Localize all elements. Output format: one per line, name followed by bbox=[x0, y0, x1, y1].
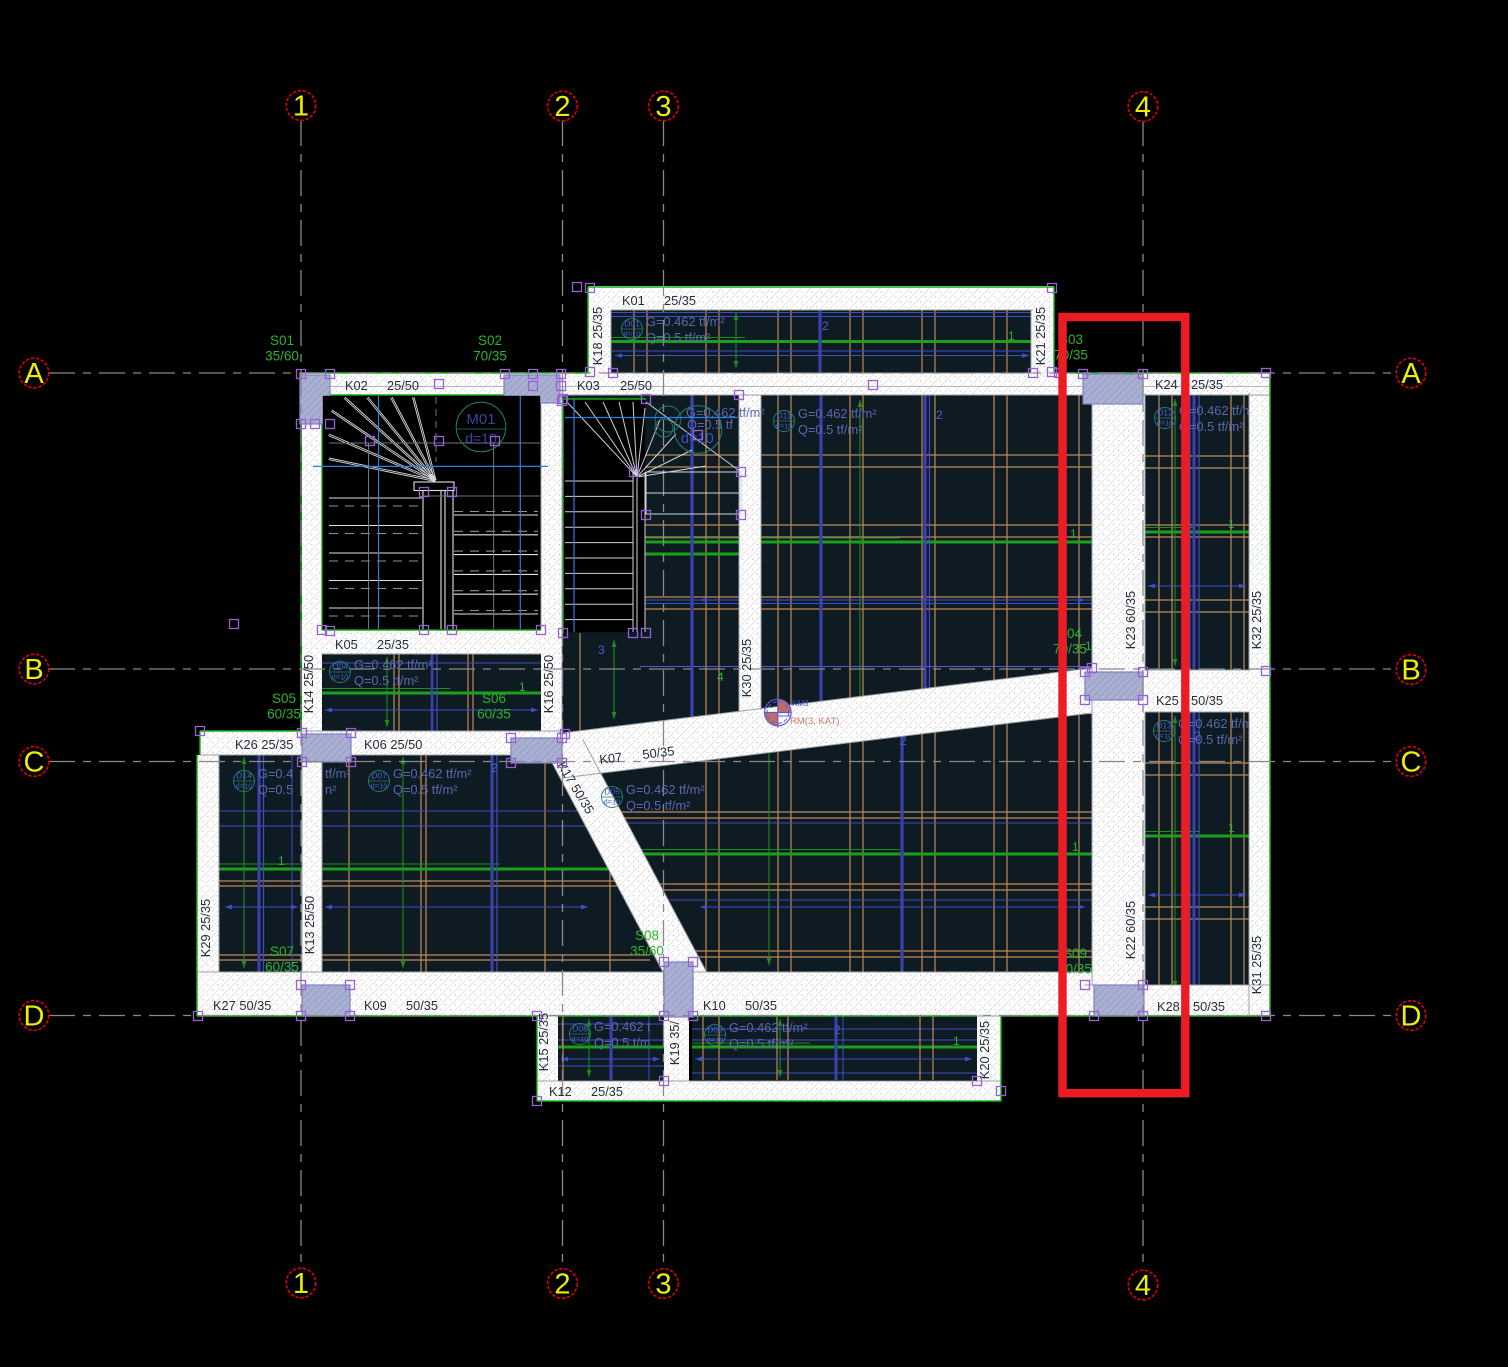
svg-text:35/60: 35/60 bbox=[630, 944, 664, 959]
svg-text:25/50: 25/50 bbox=[620, 378, 652, 393]
svg-text:D08: D08 bbox=[572, 1024, 588, 1034]
svg-text:2: 2 bbox=[822, 319, 829, 333]
svg-text:50/35: 50/35 bbox=[745, 998, 777, 1013]
svg-text:2: 2 bbox=[491, 761, 498, 775]
svg-text:KM3: KM3 bbox=[792, 699, 809, 708]
svg-text:M01: M01 bbox=[466, 411, 495, 428]
svg-text:d=10: d=10 bbox=[465, 430, 497, 446]
svg-text:K12: K12 bbox=[549, 1084, 572, 1099]
svg-text:60/35: 60/35 bbox=[267, 707, 301, 722]
svg-text:K10: K10 bbox=[703, 998, 726, 1013]
svg-text:K26 25/35: K26 25/35 bbox=[235, 737, 293, 752]
svg-text:4: 4 bbox=[1135, 1270, 1151, 1302]
svg-text:n²: n² bbox=[325, 782, 337, 797]
svg-text:35/60: 35/60 bbox=[265, 349, 299, 364]
svg-text:1: 1 bbox=[1008, 329, 1015, 343]
svg-text:C: C bbox=[24, 746, 45, 778]
svg-text:70/35: 70/35 bbox=[1053, 642, 1087, 657]
svg-text:K19 35/: K19 35/ bbox=[667, 1021, 682, 1066]
svg-text:K14 25/50: K14 25/50 bbox=[301, 655, 316, 713]
svg-text:B: B bbox=[24, 654, 43, 686]
svg-text:1: 1 bbox=[1072, 840, 1079, 854]
svg-text:25/35: 25/35 bbox=[664, 293, 696, 308]
svg-text:1: 1 bbox=[1228, 821, 1235, 835]
svg-text:3: 3 bbox=[655, 91, 671, 123]
svg-text:d=10: d=10 bbox=[624, 330, 641, 339]
svg-text:50/35: 50/35 bbox=[406, 998, 438, 1013]
svg-text:K29 25/35: K29 25/35 bbox=[198, 899, 213, 957]
svg-text:G=0.462 tf/m²: G=0.462 tf/m² bbox=[393, 766, 472, 781]
svg-text:d=10: d=10 bbox=[1157, 419, 1174, 428]
svg-text:S05: S05 bbox=[272, 691, 296, 706]
svg-text:60/35: 60/35 bbox=[265, 960, 299, 975]
svg-text:S01: S01 bbox=[270, 333, 294, 348]
svg-text:G=0.462 tf/m²: G=0.462 tf/m² bbox=[729, 1020, 808, 1035]
svg-text:K02: K02 bbox=[345, 378, 368, 393]
svg-text:D14: D14 bbox=[236, 771, 252, 781]
svg-text:Q=0.5: Q=0.5 bbox=[258, 782, 293, 797]
svg-text:Q=0.5 tf/m²: Q=0.5 tf/m² bbox=[798, 422, 863, 437]
svg-text:2: 2 bbox=[834, 1023, 841, 1037]
svg-text:d=10: d=10 bbox=[572, 1035, 589, 1044]
svg-text:50/35: 50/35 bbox=[1191, 693, 1223, 708]
svg-text:K30 25/35: K30 25/35 bbox=[739, 639, 754, 697]
svg-text:K15 25/35: K15 25/35 bbox=[536, 1013, 551, 1071]
svg-text:K25: K25 bbox=[1156, 693, 1179, 708]
svg-text:d=10: d=10 bbox=[332, 673, 349, 682]
svg-text:D05: D05 bbox=[604, 787, 620, 797]
svg-text:d=10: d=10 bbox=[604, 798, 621, 807]
svg-text:1: 1 bbox=[293, 1268, 309, 1300]
svg-text:70/35: 70/35 bbox=[473, 349, 507, 364]
svg-text:25/35: 25/35 bbox=[591, 1084, 623, 1099]
svg-text:G=0.462 t: G=0.462 t bbox=[594, 1019, 651, 1034]
svg-text:D09: D09 bbox=[707, 1025, 723, 1035]
svg-text:2: 2 bbox=[554, 1268, 570, 1300]
svg-text:D12: D12 bbox=[1157, 408, 1173, 418]
svg-text:S02: S02 bbox=[478, 333, 502, 348]
svg-text:D04: D04 bbox=[332, 662, 348, 672]
svg-text:D: D bbox=[24, 1000, 45, 1032]
svg-text:1: 1 bbox=[293, 90, 309, 122]
svg-text:G=0.462 tf/m²: G=0.462 tf/m² bbox=[1178, 716, 1257, 731]
svg-text:K07: K07 bbox=[599, 749, 623, 767]
svg-text:D11: D11 bbox=[777, 411, 792, 421]
svg-text:K09: K09 bbox=[364, 998, 387, 1013]
svg-text:4: 4 bbox=[1135, 91, 1151, 123]
svg-text:Q=0.5 tf/m²: Q=0.5 tf/m² bbox=[354, 673, 419, 688]
svg-text:S06: S06 bbox=[482, 691, 506, 706]
svg-text:25/50: 25/50 bbox=[387, 378, 419, 393]
svg-text:25/35: 25/35 bbox=[1191, 377, 1223, 392]
svg-text:S08: S08 bbox=[635, 928, 659, 943]
svg-text:K23 60/35: K23 60/35 bbox=[1123, 591, 1138, 649]
svg-text:1: 1 bbox=[1070, 527, 1077, 541]
svg-text:D01: D01 bbox=[624, 319, 640, 329]
svg-text:1: 1 bbox=[519, 680, 526, 694]
svg-text:1: 1 bbox=[278, 854, 285, 868]
svg-text:Q=0.5 tf/m²: Q=0.5 tf/m² bbox=[729, 1036, 794, 1051]
svg-text:K31 25/35: K31 25/35 bbox=[1249, 936, 1264, 994]
svg-text:D13: D13 bbox=[1156, 721, 1172, 731]
svg-text:C: C bbox=[1401, 746, 1422, 778]
svg-text:K27 50/35: K27 50/35 bbox=[213, 998, 271, 1013]
svg-text:d=10: d=10 bbox=[1156, 732, 1173, 741]
svg-text:d=10: d=10 bbox=[236, 782, 253, 791]
svg-text:Q=0.5 tf/m²: Q=0.5 tf/m² bbox=[393, 782, 458, 797]
svg-text:1: 1 bbox=[953, 1034, 960, 1048]
svg-text:4: 4 bbox=[717, 670, 724, 684]
svg-text:K28: K28 bbox=[1157, 999, 1180, 1014]
svg-text:G=0.462 tf/m²: G=0.462 tf/m² bbox=[646, 314, 725, 329]
svg-text:d=10: d=10 bbox=[371, 782, 388, 791]
svg-text:Q=0.5 tf/m²: Q=0.5 tf/m² bbox=[626, 798, 691, 813]
svg-text:K21 25/35: K21 25/35 bbox=[1033, 307, 1048, 365]
svg-text:2: 2 bbox=[936, 408, 943, 422]
svg-text:2: 2 bbox=[554, 91, 570, 123]
svg-text:RM(3. KAT): RM(3. KAT) bbox=[790, 716, 839, 727]
svg-text:1: 1 bbox=[1228, 517, 1235, 531]
svg-text:B: B bbox=[1401, 654, 1420, 686]
svg-text:G=0.462 tf/m²: G=0.462 tf/m² bbox=[1179, 403, 1258, 418]
svg-text:D: D bbox=[1401, 1000, 1422, 1032]
svg-text:K32 25/35: K32 25/35 bbox=[1249, 591, 1264, 649]
svg-text:G=0.4: G=0.4 bbox=[258, 766, 293, 781]
svg-text:Q=0.5 t/m: Q=0.5 t/m bbox=[594, 1035, 651, 1050]
svg-text:Q=0.5 tf: Q=0.5 tf bbox=[687, 417, 733, 432]
svg-text:d=10: d=10 bbox=[707, 1036, 724, 1045]
svg-text:K24: K24 bbox=[1155, 377, 1178, 392]
svg-text:25/35: 25/35 bbox=[377, 637, 409, 652]
svg-text:Q=0.5 tf/m²: Q=0.5 tf/m² bbox=[646, 330, 711, 345]
svg-text:G=0.462 tf/m²: G=0.462 tf/m² bbox=[626, 782, 705, 797]
svg-text:A: A bbox=[1401, 358, 1421, 390]
svg-text:D07: D07 bbox=[371, 771, 387, 781]
svg-text:3: 3 bbox=[655, 1268, 671, 1300]
svg-text:K13 25/50: K13 25/50 bbox=[302, 896, 317, 954]
svg-text:A: A bbox=[24, 358, 44, 390]
svg-text:60/35: 60/35 bbox=[477, 707, 511, 722]
svg-text:K20 25/35: K20 25/35 bbox=[977, 1021, 992, 1079]
svg-text:K16 25/50: K16 25/50 bbox=[541, 655, 556, 713]
svg-text:K01: K01 bbox=[622, 293, 645, 308]
svg-text:K22 60/35: K22 60/35 bbox=[1123, 901, 1138, 959]
svg-text:50/35: 50/35 bbox=[1193, 999, 1225, 1014]
svg-text:G=0.462 tf/m²: G=0.462 tf/m² bbox=[798, 406, 877, 421]
svg-text:3: 3 bbox=[598, 643, 605, 657]
svg-text:tf/m²: tf/m² bbox=[325, 766, 351, 781]
svg-text:K03: K03 bbox=[577, 378, 600, 393]
svg-text:K05: K05 bbox=[335, 637, 358, 652]
svg-text:K18 25/35: K18 25/35 bbox=[590, 307, 605, 365]
svg-text:S07: S07 bbox=[270, 944, 294, 959]
svg-text:G=0.462 tf/m²: G=0.462 tf/m² bbox=[354, 657, 433, 672]
svg-text:K06 25/50: K06 25/50 bbox=[364, 737, 422, 752]
svg-text:d=10: d=10 bbox=[776, 422, 793, 431]
